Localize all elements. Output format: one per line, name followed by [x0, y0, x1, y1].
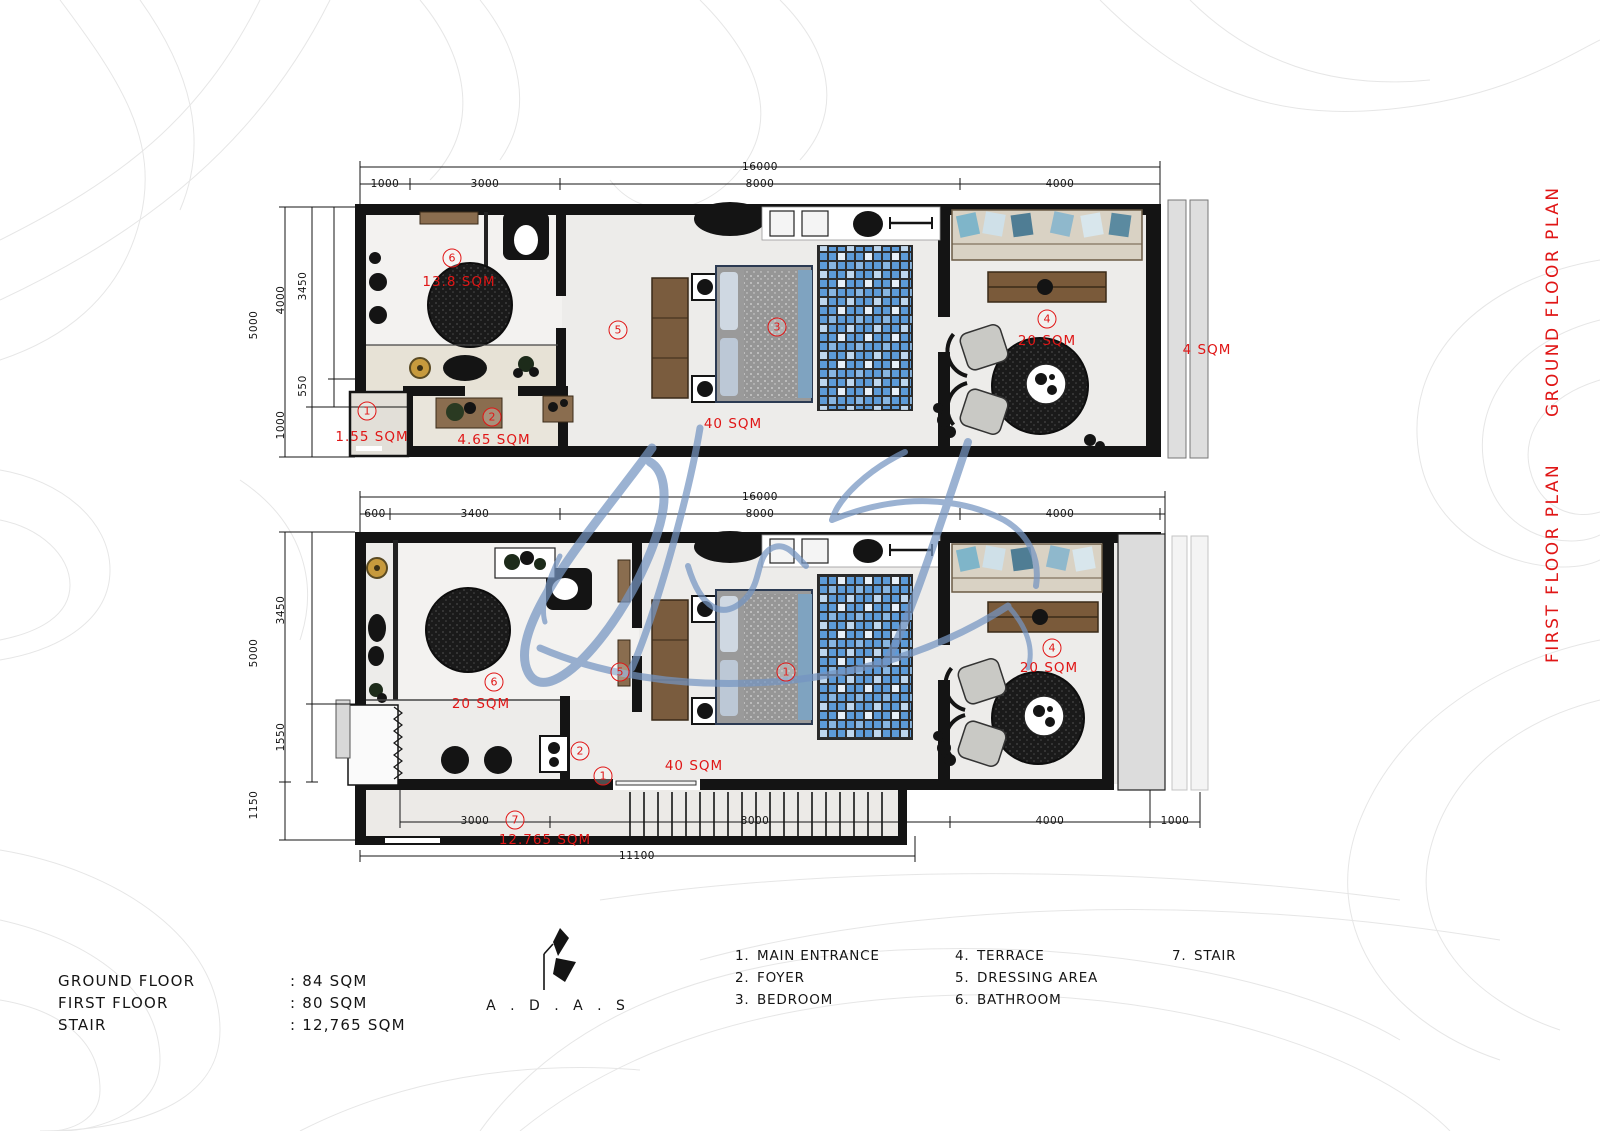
stat-value-first-floor: : 80 SQM — [290, 994, 368, 1012]
adas-logo-text: A . D . A . S — [482, 998, 634, 1014]
legend-label: MAIN ENTRANCE — [757, 948, 880, 964]
legend-num: 3. — [735, 992, 757, 1008]
gf-bedroom-number: 3 — [768, 318, 787, 337]
ff-dim-bottom-d: 1000 — [1161, 815, 1190, 827]
ff-entrance-number: 1 — [594, 767, 613, 786]
ground-floor-plan — [279, 161, 1208, 458]
ff-bathroom-area: 20 SQM — [452, 696, 510, 712]
ff-foyer-number: 2 — [571, 742, 590, 761]
ground-floor-plan-title: GROUND FLOOR PLAN — [1543, 207, 1563, 417]
ff-dim-left-a: 3450 — [275, 596, 287, 625]
gf-dim-top-b: 3000 — [471, 178, 500, 190]
stat-value-stair: : 12,765 SQM — [290, 1016, 406, 1034]
legend-label: FOYER — [757, 970, 805, 986]
gf-bedroom-area: 40 SQM — [704, 416, 762, 432]
ff-stair-area: 12.765 SQM — [499, 832, 591, 848]
legend-item-foyer: 2.FOYER — [735, 970, 805, 986]
gf-dim-left-a: 4000 — [275, 286, 287, 315]
adas-logo-icon — [532, 926, 592, 996]
legend-label: BEDROOM — [757, 992, 833, 1008]
ff-dim-bottom-a: 3000 — [461, 815, 490, 827]
ff-dim-bottom-b: 8000 — [741, 815, 770, 827]
legend-label: DRESSING AREA — [977, 970, 1098, 986]
ff-bathroom-number: 6 — [485, 673, 504, 692]
gf-dim-top-a: 1000 — [371, 178, 400, 190]
ff-dim-bottom-c: 4000 — [1036, 815, 1065, 827]
stat-value-ground-floor: : 84 SQM — [290, 972, 368, 990]
ff-terrace-number: 4 — [1043, 639, 1062, 658]
legend-label: TERRACE — [977, 948, 1045, 964]
ff-terrace-area: 20 SQM — [1020, 660, 1078, 676]
ff-bedroom-area: 40 SQM — [665, 758, 723, 774]
floor-plan-sheet: { "colors":{"accent_red":"#e01616","wall… — [0, 0, 1600, 1131]
stat-label-stair: STAIR — [58, 1016, 107, 1034]
gf-dim-left-c: 550 — [297, 375, 309, 397]
gf-terrace-area: 20 SQM — [1018, 333, 1076, 349]
ff-bedroom-number: 1 — [777, 663, 796, 682]
legend-item-bedroom: 3.BEDROOM — [735, 992, 833, 1008]
ff-dim-top-d: 4000 — [1046, 508, 1075, 520]
gf-dim-left-total: 5000 — [248, 311, 260, 340]
ff-dressing-number: 5 — [611, 663, 630, 682]
legend-num: 4. — [955, 948, 977, 964]
ff-dim-left-total: 5000 — [248, 639, 260, 668]
legend-label: STAIR — [1194, 948, 1236, 964]
legend-num: 5. — [955, 970, 977, 986]
legend-label: BATHROOM — [977, 992, 1062, 1008]
first-floor-plan — [279, 491, 1208, 862]
ff-dim-left-b: 1550 — [275, 723, 287, 752]
gf-dim-top-c: 8000 — [746, 178, 775, 190]
legend-item-dressing-area: 5.DRESSING AREA — [955, 970, 1098, 986]
gf-entrance-area: 1.55 SQM — [335, 429, 408, 445]
ff-dim-total-top: 16000 — [742, 491, 778, 503]
first-floor-plan-title: FIRST FLOOR PLAN — [1543, 493, 1563, 663]
ff-dim-top-c: 8000 — [746, 508, 775, 520]
legend-item-stair: 7.STAIR — [1172, 948, 1236, 964]
legend-num: 6. — [955, 992, 977, 1008]
gf-bathroom-area: 13.8 SQM — [422, 274, 495, 290]
legend-num: 2. — [735, 970, 757, 986]
stat-label-ground-floor: GROUND FLOOR — [58, 972, 195, 990]
ff-dim-top-b: 3400 — [461, 508, 490, 520]
gf-foyer-area: 4.65 SQM — [457, 432, 530, 448]
ff-dim-top-a: 600 — [364, 508, 386, 520]
legend-num: 7. — [1172, 948, 1194, 964]
legend-num: 1. — [735, 948, 757, 964]
gf-balcony-area: 4 SQM — [1183, 342, 1232, 358]
ff-dim-bottom-total: 11100 — [619, 850, 655, 862]
legend-item-terrace: 4.TERRACE — [955, 948, 1045, 964]
gf-dim-top-d: 4000 — [1046, 178, 1075, 190]
gf-dim-left-b: 3450 — [297, 272, 309, 301]
gf-dim-total-top: 16000 — [742, 161, 778, 173]
gf-foyer-number: 2 — [483, 408, 502, 427]
gf-entrance-number: 1 — [358, 402, 377, 421]
gf-dim-left-d: 1000 — [275, 411, 287, 440]
gf-terrace-number: 4 — [1038, 310, 1057, 329]
gf-bathroom-number: 6 — [443, 249, 462, 268]
stat-label-first-floor: FIRST FLOOR — [58, 994, 169, 1012]
ff-stair-number: 7 — [506, 811, 525, 830]
legend-item-bathroom: 6.BATHROOM — [955, 992, 1062, 1008]
legend-item-main-entrance: 1.MAIN ENTRANCE — [735, 948, 880, 964]
ff-dim-left-c: 1150 — [248, 791, 260, 820]
gf-dressing-number: 5 — [609, 321, 628, 340]
